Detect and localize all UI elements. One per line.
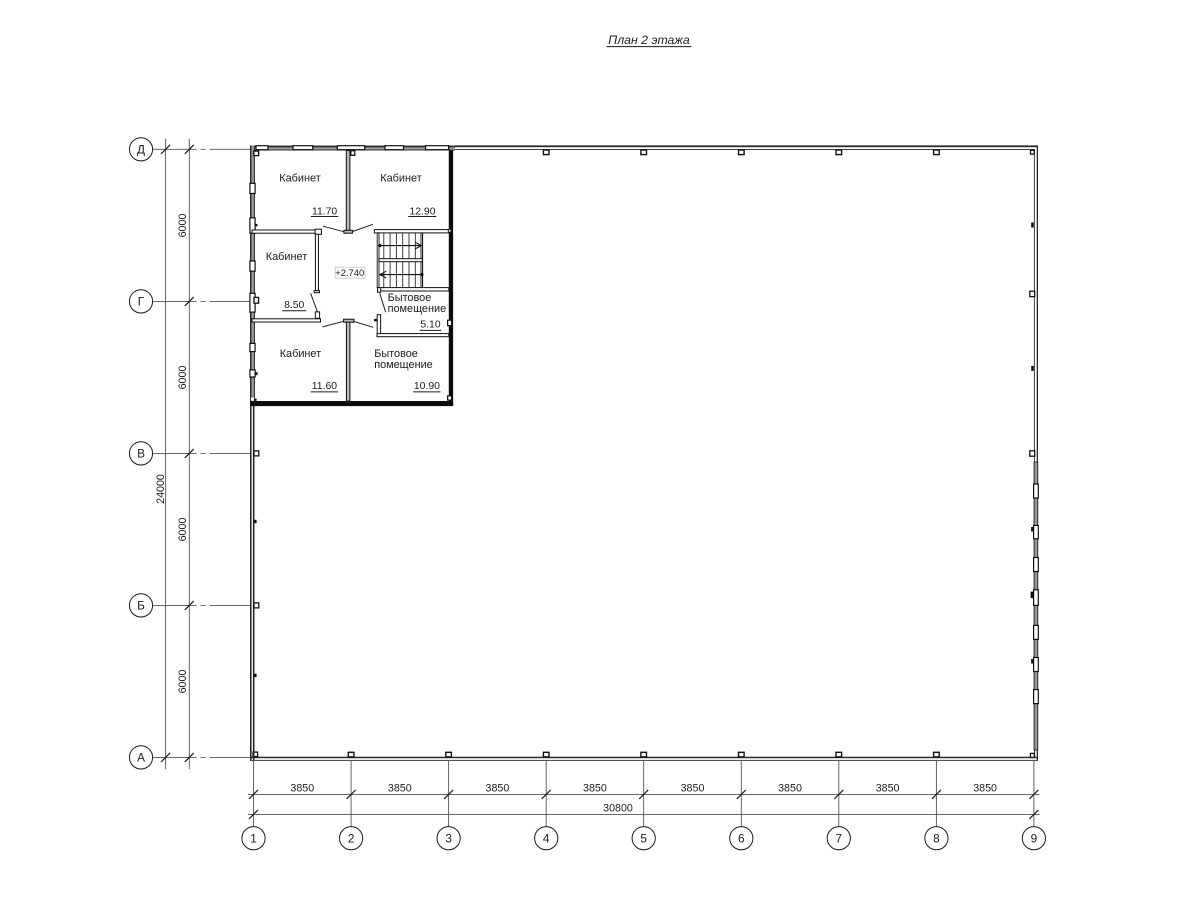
svg-text:Д: Д: [137, 143, 145, 157]
svg-text:3850: 3850: [876, 783, 900, 795]
svg-text:Кабинет: Кабинет: [266, 251, 307, 263]
svg-text:Б: Б: [137, 599, 145, 613]
svg-text:1: 1: [250, 832, 257, 846]
svg-text:помещение: помещение: [388, 303, 447, 315]
svg-text:помещение: помещение: [374, 359, 433, 371]
svg-text:3850: 3850: [973, 783, 997, 795]
svg-text:6000: 6000: [177, 670, 189, 694]
svg-text:3: 3: [445, 832, 452, 846]
svg-text:11.70: 11.70: [312, 206, 337, 217]
svg-text:6: 6: [738, 832, 745, 846]
svg-text:В: В: [137, 447, 145, 461]
svg-text:12.90: 12.90: [409, 206, 435, 217]
svg-text:6000: 6000: [177, 214, 189, 238]
svg-text:Г: Г: [138, 295, 145, 309]
svg-text:4: 4: [543, 832, 550, 846]
svg-text:5.10: 5.10: [420, 320, 440, 331]
svg-text:6000: 6000: [177, 366, 189, 390]
svg-text:30800: 30800: [603, 802, 633, 814]
svg-text:Кабинет: Кабинет: [279, 172, 320, 184]
svg-text:Кабинет: Кабинет: [380, 172, 421, 184]
svg-text:2: 2: [348, 832, 355, 846]
svg-text:5: 5: [640, 832, 647, 846]
svg-text:3850: 3850: [778, 783, 802, 795]
svg-text:8.50: 8.50: [284, 300, 304, 311]
svg-text:10.90: 10.90: [414, 381, 440, 392]
svg-text:9: 9: [1031, 832, 1038, 846]
svg-text:7: 7: [836, 832, 843, 846]
svg-text:+2.740: +2.740: [335, 267, 364, 278]
svg-text:8: 8: [933, 832, 940, 846]
svg-text:24000: 24000: [155, 474, 167, 504]
svg-text:3850: 3850: [681, 783, 705, 795]
svg-text:6000: 6000: [177, 518, 189, 542]
svg-text:3850: 3850: [583, 783, 607, 795]
svg-text:3850: 3850: [486, 783, 510, 795]
svg-text:Кабинет: Кабинет: [280, 348, 321, 360]
svg-text:3850: 3850: [290, 783, 314, 795]
svg-text:А: А: [137, 751, 145, 765]
svg-text:11.60: 11.60: [312, 381, 337, 392]
svg-text:План 2 этажа: План 2 этажа: [608, 33, 690, 47]
svg-text:3850: 3850: [388, 783, 412, 795]
